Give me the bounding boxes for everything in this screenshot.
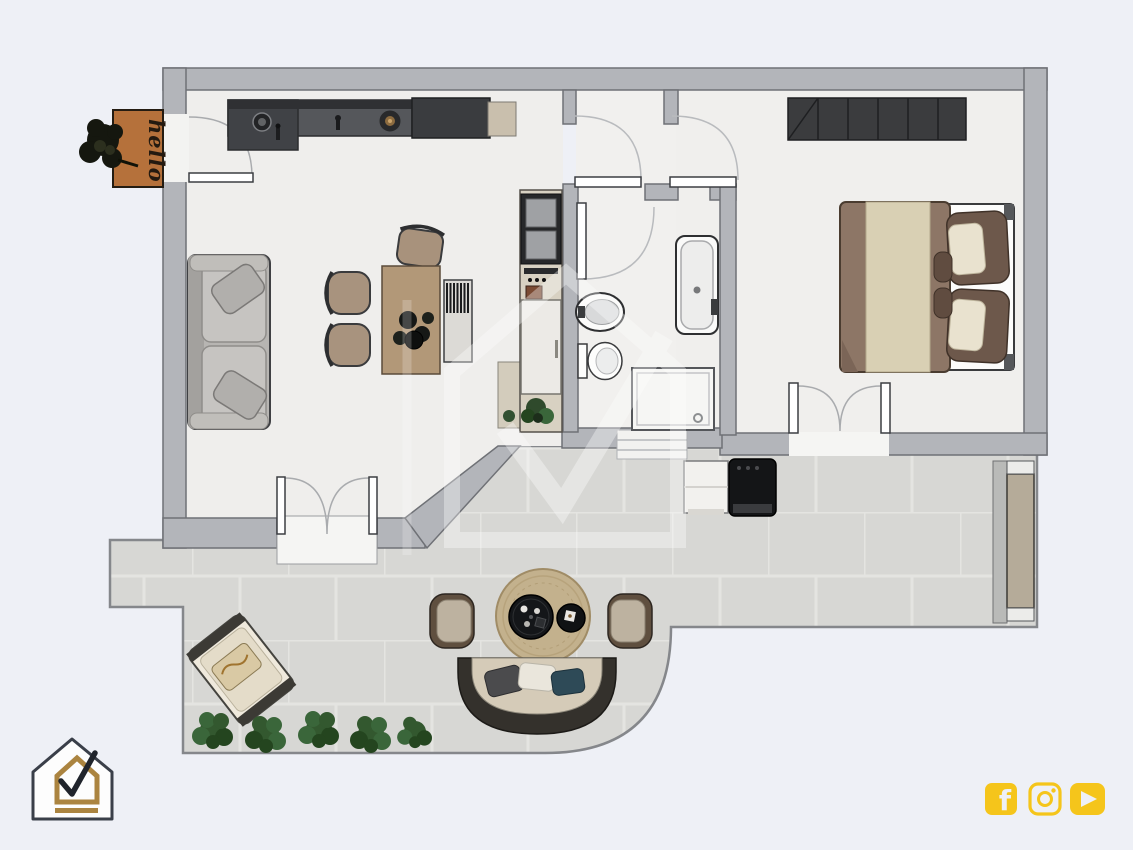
living-french-leaf-left [277, 477, 285, 534]
bedroom-french-leaf-left [789, 383, 798, 433]
shelf-items [524, 268, 558, 274]
kitchen-island [412, 98, 490, 138]
dining-chair [326, 272, 370, 314]
outdoor-armchair-left [430, 594, 474, 648]
bathroom-door-leaf [577, 203, 586, 279]
coffee-table [509, 595, 553, 639]
bedroom-french-leaf-right [881, 383, 890, 433]
logo-underline [55, 808, 98, 813]
youtube-icon[interactable] [1070, 783, 1105, 815]
wall-top [163, 68, 1047, 90]
sofa-armrest [190, 255, 268, 271]
bedroom-terrace-opening [789, 432, 889, 456]
doormat-text: hello [144, 119, 169, 183]
kitchen-island-cap [488, 102, 516, 136]
bedroom-door-leaf [670, 177, 736, 187]
living-french-leaf-right [369, 477, 377, 534]
kitchen-faucet [276, 128, 280, 140]
facebook-icon[interactable]: f [985, 783, 1017, 817]
wall-right [1024, 68, 1047, 455]
bed-pillow-cream [948, 223, 986, 276]
wall-bedroom-left [720, 184, 736, 435]
desk-chair [396, 224, 445, 269]
stairs [788, 98, 966, 140]
grill [729, 459, 776, 516]
planter-box [1007, 474, 1034, 608]
toilet [578, 343, 622, 380]
sofa-pillow-white [518, 662, 557, 692]
sofa [188, 255, 270, 429]
wall-stub-b [664, 90, 678, 124]
kitchen-counter-top-strip [228, 100, 412, 109]
bed-runner [866, 202, 930, 372]
dining-chair [326, 324, 370, 366]
wall-living-bottom-left [163, 518, 277, 548]
svg-text:f: f [999, 784, 1012, 817]
floor-plan-canvas: hello f [0, 0, 1133, 850]
wall-stub-a [563, 90, 576, 124]
outdoor-cabinet [684, 461, 728, 515]
closet-door-leaf [575, 177, 641, 187]
sofa-pillow-teal [550, 668, 585, 696]
bathtub [676, 236, 718, 334]
entrance-door-leaf [189, 173, 253, 182]
double-bed [840, 202, 1014, 372]
side-table [557, 604, 585, 632]
outdoor-armchair-right [608, 594, 652, 648]
planter-strip [993, 461, 1007, 623]
bed-pillow-cream [948, 299, 986, 352]
